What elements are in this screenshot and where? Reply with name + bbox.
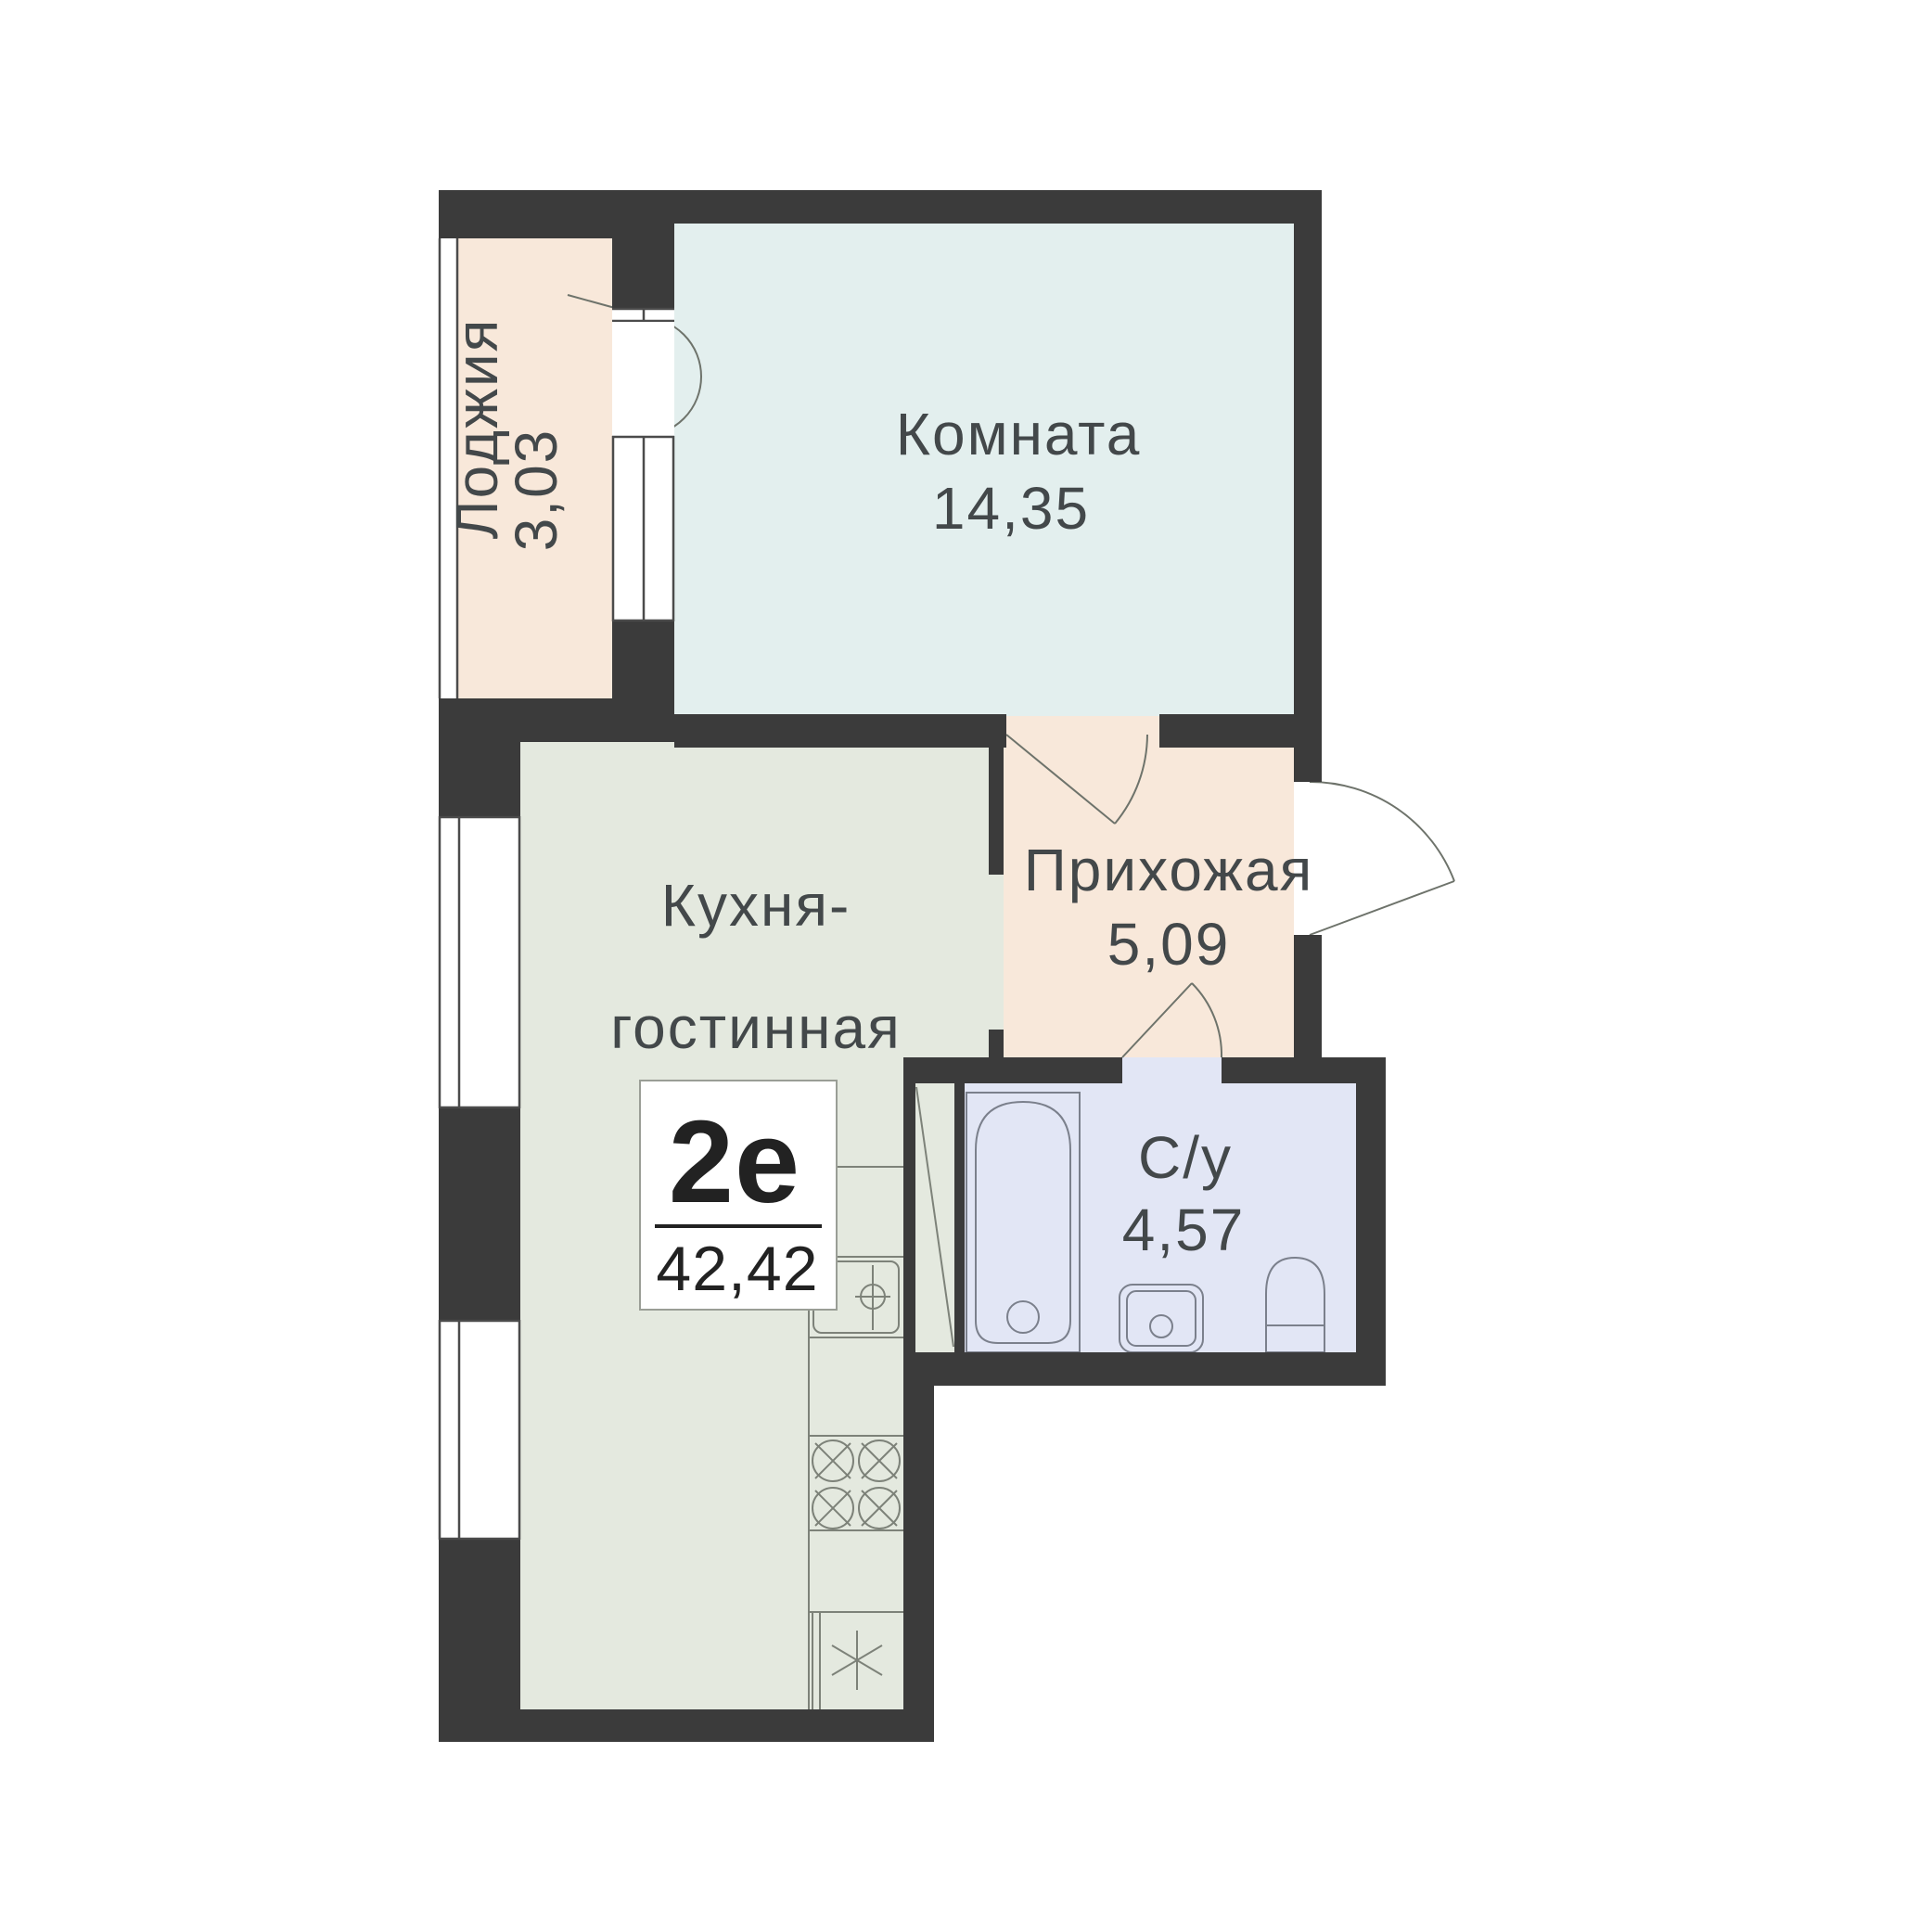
room-fill-room: [674, 224, 1294, 716]
badge-total-area: 42,42: [656, 1234, 818, 1304]
balcony-door-opening: [612, 322, 674, 436]
floor-plan: Лоджия 3,03 Комната 14,35 Кухня- гостинн…: [0, 0, 1932, 1932]
svg-text:С/у: С/у: [1138, 1124, 1233, 1191]
svg-text:Лоджия: Лоджия: [443, 318, 510, 540]
kitchen-window-lower: [439, 1320, 520, 1540]
kitchen-window-upper: [439, 816, 520, 1108]
label-hallway-area: 5,09: [1107, 911, 1231, 978]
label-bathroom-area: 4,57: [1122, 1196, 1246, 1263]
svg-text:Кухня-: Кухня-: [661, 872, 851, 939]
badge-type-label: 2е: [669, 1096, 800, 1227]
svg-text:Комната: Комната: [896, 401, 1142, 467]
balcony-window: [612, 308, 674, 621]
floor-plan-canvas: Лоджия 3,03 Комната 14,35 Кухня- гостинн…: [0, 0, 1932, 1932]
svg-text:гостинная: гостинная: [610, 994, 902, 1061]
label-room-area: 14,35: [932, 475, 1090, 542]
apartment-type-badge: 2е 42,42: [640, 1081, 837, 1310]
svg-text:Прихожая: Прихожая: [1024, 837, 1314, 903]
label-loggia-area: 3,03: [503, 429, 569, 552]
entrance-door-arc: [1310, 782, 1454, 935]
